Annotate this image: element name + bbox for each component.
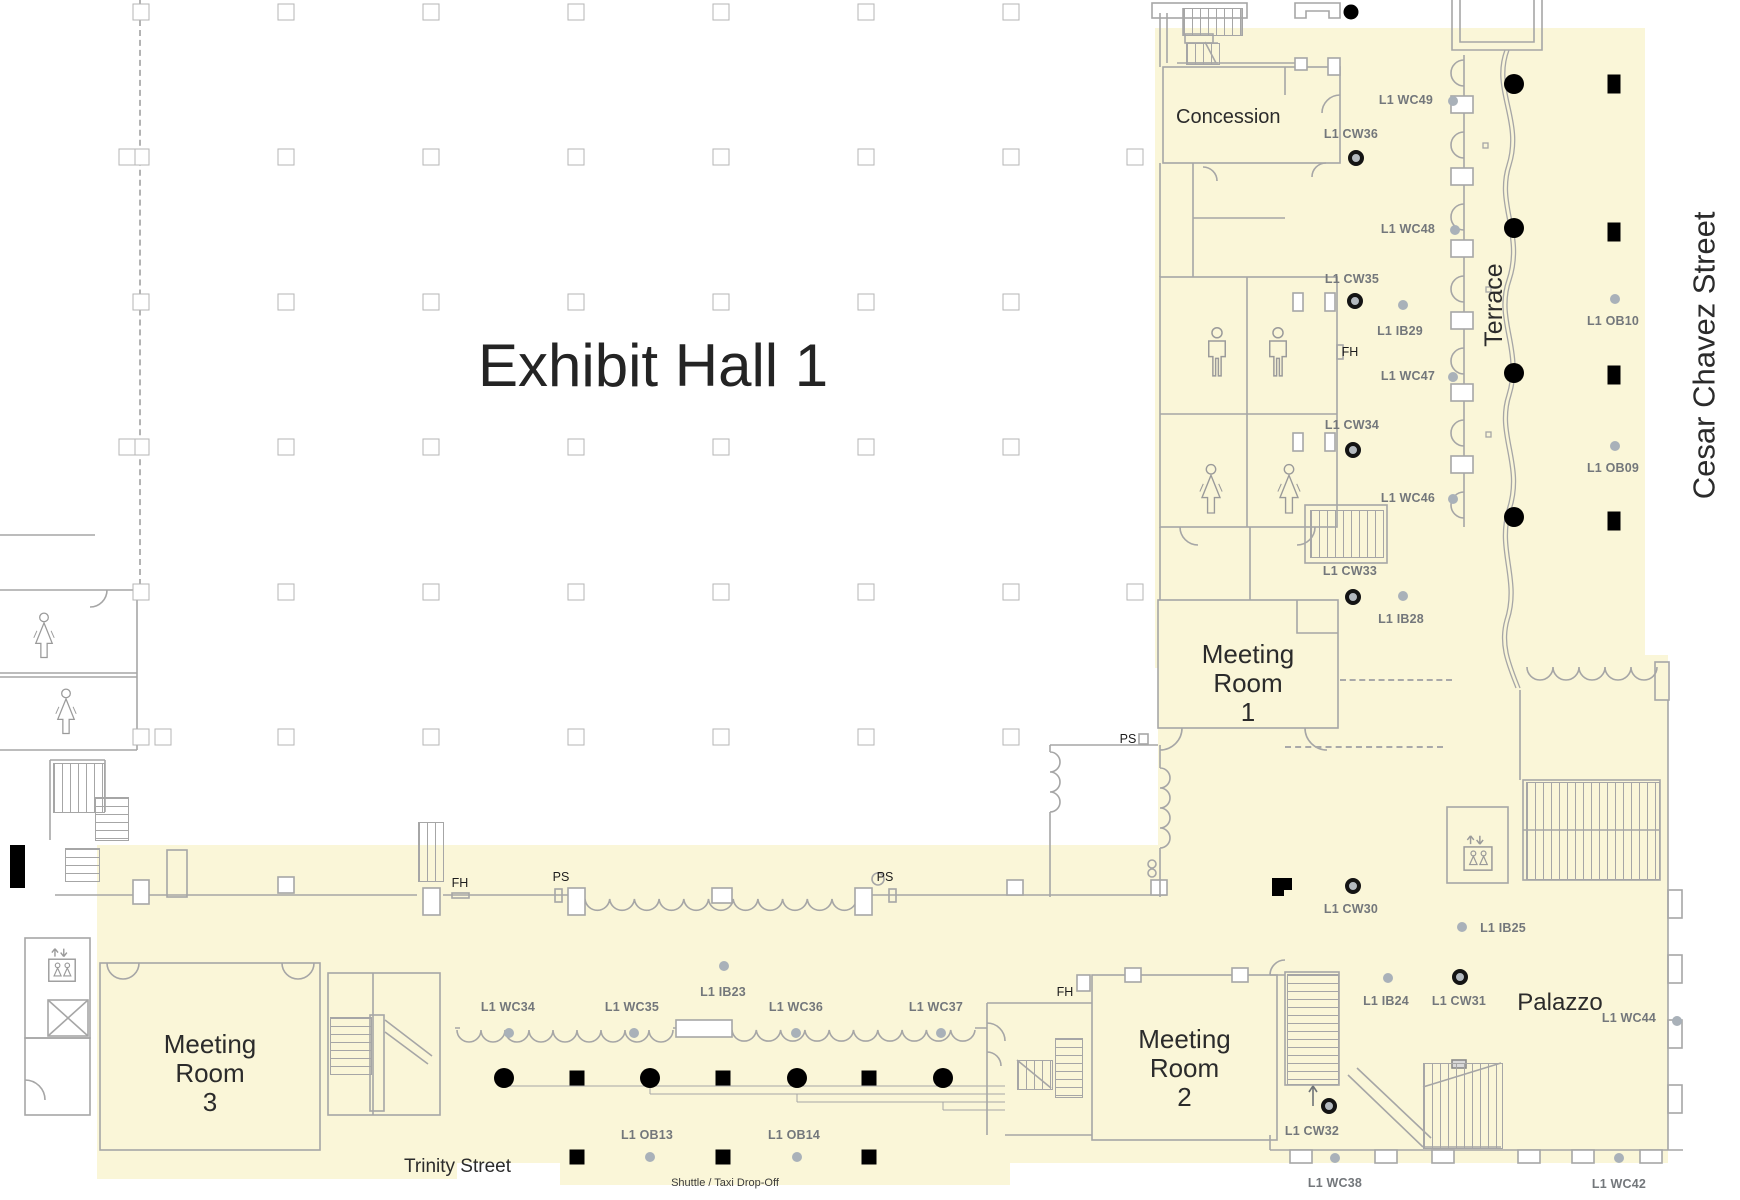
column-round: [1504, 74, 1524, 94]
structural-column-grid: [858, 149, 875, 166]
column-square: [716, 1071, 731, 1086]
utility-label-l1-ib24: L1 IB24: [1363, 994, 1409, 1008]
concession-label: Concession: [1176, 106, 1281, 128]
structural-column-grid: [1003, 4, 1020, 21]
utility-marker-l1-wc47: [1448, 372, 1458, 382]
column-square: [716, 1150, 731, 1165]
utility-label-l1-wc42: L1 WC42: [1592, 1177, 1646, 1191]
column-round: [1504, 218, 1524, 238]
utility-marker-l1-ib24: [1383, 973, 1393, 983]
structural-column-grid: [858, 4, 875, 21]
structural-column-grid: [568, 439, 585, 456]
utility-label-l1-wc48: L1 WC48: [1381, 222, 1435, 236]
utility-label-l1-wc46: L1 WC46: [1381, 491, 1435, 505]
utility-label-l1-wc37: L1 WC37: [909, 1000, 963, 1014]
stairs-west-c: [65, 848, 100, 882]
utility-marker-l1-wc35: [629, 1028, 639, 1038]
utility-label-l1-wc47: L1 WC47: [1381, 369, 1435, 383]
structural-column-grid: [1003, 584, 1020, 601]
structural-column-grid: [423, 149, 440, 166]
west-structures: [0, 535, 187, 1115]
structural-column-grid: [1003, 729, 1020, 746]
structural-column-grid: [713, 4, 730, 21]
structural-column-grid: [713, 149, 730, 166]
structural-column-grid: [423, 439, 440, 456]
column-rect: [1608, 75, 1621, 94]
column-round: [494, 1068, 514, 1088]
utility-marker-l1-cw35: [1347, 293, 1363, 309]
utility-marker-l1-ob09: [1610, 441, 1620, 451]
utility-label-l1-cw30: L1 CW30: [1324, 902, 1378, 916]
stairs-palazzo-west: [1287, 974, 1339, 1085]
structural-column-grid: [278, 584, 295, 601]
utility-marker-l1-wc38: [1330, 1153, 1340, 1163]
utility-marker-l1-cw33: [1345, 589, 1361, 605]
fixture-label-ps-2: PS: [877, 870, 894, 884]
meeting-room-1-label: Meeting Room 1: [1158, 640, 1338, 727]
stairs-palazzo-northeast: [1526, 782, 1660, 880]
column-round: [1344, 5, 1359, 20]
column-square: [862, 1071, 877, 1086]
elevator-icon: [49, 949, 75, 982]
exhibit-hall-walls: [55, 13, 1167, 915]
utility-label-l1-cw34: L1 CW34: [1325, 418, 1379, 432]
utility-marker-l1-wc44: [1672, 1016, 1682, 1026]
utility-label-l1-ib23: L1 IB23: [700, 985, 746, 999]
structural-column-grid: [278, 4, 295, 21]
fixture-label-ps-5: PS: [1120, 732, 1137, 746]
column-round: [787, 1068, 807, 1088]
column-rect: [1608, 223, 1621, 242]
corridor-south-wall: [455, 1020, 987, 1042]
utility-marker-l1-wc37: [936, 1028, 946, 1038]
utility-marker-l1-wc42: [1614, 1153, 1624, 1163]
column-square: [570, 1150, 585, 1165]
north-entry-structure: [1295, 3, 1340, 18]
utility-marker-l1-cw32: [1321, 1098, 1337, 1114]
fixture-label-ps-1: PS: [553, 870, 570, 884]
utility-label-l1-ob10: L1 OB10: [1587, 314, 1639, 328]
utility-label-l1-cw31: L1 CW31: [1432, 994, 1486, 1008]
utility-label-l1-wc34: L1 WC34: [481, 1000, 535, 1014]
utility-label-l1-ob13: L1 OB13: [621, 1128, 673, 1142]
structural-column-grid: [568, 4, 585, 21]
stairs-north: [1183, 8, 1243, 36]
restroom-icon-female: [1200, 465, 1222, 513]
southeast-connector-walls: [1050, 745, 1170, 897]
utility-marker-l1-cw34: [1345, 442, 1361, 458]
palazzo-overhead-dashed-line: [1285, 746, 1443, 748]
structural-column-grid: [713, 729, 730, 746]
meeting-room-3-label: Meeting Room 3: [100, 1030, 320, 1117]
structural-column-grid: [1003, 149, 1020, 166]
utility-marker-l1-wc49: [1448, 96, 1458, 106]
column-round: [1504, 507, 1524, 527]
structural-column-grid: [423, 4, 440, 21]
structural-column-grid: [278, 439, 295, 456]
structural-column-grid: [713, 439, 730, 456]
structural-column-grid: [423, 584, 440, 601]
shuttle-dropoff-label: Shuttle / Taxi Drop-Off: [640, 1177, 810, 1189]
utility-marker-l1-wc36: [791, 1028, 801, 1038]
utility-marker-l1-wc48: [1450, 225, 1460, 235]
terrace-colonnade: [1451, 55, 1473, 527]
fixture-label-fh-4: FH: [1342, 345, 1359, 359]
structural-column-grid: [133, 4, 150, 21]
structural-column-grid: [858, 294, 875, 311]
structural-column-grid: [1127, 149, 1144, 166]
utility-marker-l1-ib28: [1398, 591, 1408, 601]
utility-label-l1-cw33: L1 CW33: [1323, 564, 1377, 578]
restroom-icon-male: [1209, 328, 1226, 376]
street-label-trinity: Trinity Street: [395, 1156, 520, 1177]
stairs-mr3: [330, 1017, 372, 1075]
structural-column-grid: [119, 149, 136, 166]
utility-label-l1-wc49: L1 WC49: [1379, 93, 1433, 107]
structural-column-grid: [568, 149, 585, 166]
structural-column-grid: [423, 294, 440, 311]
restroom-icon-female: [1278, 465, 1300, 513]
utility-marker-l1-wc46: [1448, 494, 1458, 504]
restroom-icon-female: [34, 613, 54, 657]
structural-column-grid: [133, 584, 150, 601]
structural-column-grid: [1127, 584, 1144, 601]
structural-column-grid: [155, 729, 172, 746]
stairs-terrace: [1310, 510, 1384, 558]
structural-column-grid: [423, 729, 440, 746]
northeast-u-structure: [1452, 0, 1542, 50]
utility-label-l1-wc38: L1 WC38: [1308, 1176, 1362, 1190]
utility-marker-l1-wc34: [504, 1028, 514, 1038]
exhibit-hall-title: Exhibit Hall 1: [478, 332, 828, 399]
structural-column-grid: [133, 294, 150, 311]
floor-plan: Exhibit Hall 1 Concession Meeting Room 1…: [0, 0, 1740, 1200]
structural-column-grid: [133, 729, 150, 746]
street-label-cesar-chavez: Cesar Chavez Street: [1688, 200, 1723, 510]
utility-marker-l1-cw36: [1348, 150, 1364, 166]
terrace-overhead-dashed-line: [1340, 679, 1452, 681]
plan-flag-marker: [1272, 878, 1292, 896]
stairs-west-b: [95, 797, 129, 841]
stairs-north-lower: [1186, 43, 1220, 65]
utility-label-l1-wc44: L1 WC44: [1602, 1011, 1656, 1025]
utility-marker-l1-cw30: [1345, 878, 1361, 894]
stairs-mr2-lobby: [1055, 1038, 1083, 1098]
column-rect: [1608, 366, 1621, 385]
column-round: [640, 1068, 660, 1088]
structural-column-grid: [858, 729, 875, 746]
utility-label-l1-ib25: L1 IB25: [1480, 921, 1526, 935]
structural-column-grid: [713, 294, 730, 311]
utility-marker-l1-ob10: [1610, 294, 1620, 304]
structural-column-grid: [858, 584, 875, 601]
utility-label-l1-ob14: L1 OB14: [768, 1128, 820, 1142]
utility-label-l1-cw32: L1 CW32: [1285, 1124, 1339, 1138]
utility-label-l1-ib29: L1 IB29: [1377, 324, 1423, 338]
stairs-mr2-lobby-small: [1017, 1060, 1053, 1090]
utility-label-l1-cw36: L1 CW36: [1324, 127, 1378, 141]
column-square: [862, 1150, 877, 1165]
utility-marker-l1-ob13: [645, 1152, 655, 1162]
structural-column-grid: [568, 294, 585, 311]
column-round: [1504, 363, 1524, 383]
meeting-room-2-label: Meeting Room 2: [1092, 1025, 1277, 1112]
fixture-label-fh-0: FH: [452, 876, 469, 890]
escalator-southeast: [1423, 1063, 1503, 1149]
structural-column-grid: [278, 149, 295, 166]
utility-label-l1-wc35: L1 WC35: [605, 1000, 659, 1014]
column-round: [933, 1068, 953, 1088]
service-corridor-walls: [1193, 163, 1326, 277]
structural-column-grid: [713, 584, 730, 601]
structural-column-grid: [1003, 439, 1020, 456]
utility-marker-l1-ib25: [1457, 922, 1467, 932]
structural-column-grid: [568, 729, 585, 746]
utility-marker-l1-ib29: [1398, 300, 1408, 310]
entrance-marker-west: [10, 845, 25, 888]
restroom-icon-male: [1270, 328, 1287, 376]
structural-column-grid: [568, 584, 585, 601]
elevator-icon: [1464, 836, 1492, 870]
utility-label-l1-ob09: L1 OB09: [1587, 461, 1639, 475]
utility-marker-l1-ob14: [792, 1152, 802, 1162]
structural-column-grid: [278, 294, 295, 311]
column-square: [570, 1071, 585, 1086]
utility-marker-l1-ib23: [719, 961, 729, 971]
structural-column-grid: [1003, 294, 1020, 311]
utility-label-l1-wc36: L1 WC36: [769, 1000, 823, 1014]
restroom-icon-female: [56, 689, 76, 733]
utility-marker-l1-cw31: [1452, 969, 1468, 985]
utility-label-l1-ib28: L1 IB28: [1378, 612, 1424, 626]
stairs-corridor-west: [418, 822, 444, 882]
structural-column-grid: [119, 439, 136, 456]
utility-label-l1-cw35: L1 CW35: [1325, 272, 1379, 286]
palazzo-label: Palazzo: [1510, 990, 1610, 1017]
terrace-label: Terrace: [1480, 250, 1508, 360]
column-rect: [1608, 512, 1621, 531]
structural-column-grid: [278, 729, 295, 746]
fixture-label-fh-3: FH: [1057, 985, 1074, 999]
structural-column-grid: [858, 439, 875, 456]
